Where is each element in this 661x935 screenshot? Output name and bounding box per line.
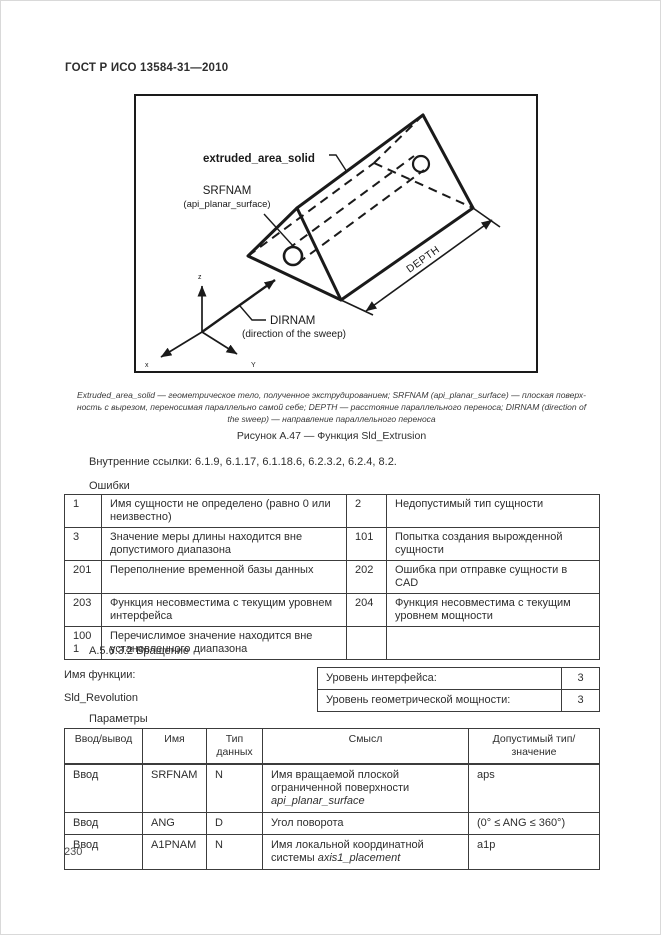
error-row: 3 Значение меры длины находится вне допу…: [65, 528, 600, 561]
function-name-label: Имя функции:: [64, 669, 135, 681]
error-desc: Функция несовместима с текущим уровнем м…: [387, 594, 600, 627]
axis-z-label: z: [198, 274, 202, 281]
params-header: Допустимый тип/значение: [469, 729, 600, 765]
legend-line: ность с вырезом, переносимая параллельно…: [64, 401, 599, 413]
param-io: Ввод: [65, 813, 143, 835]
error-desc: Имя сущности не определено (равно 0 или …: [102, 495, 347, 528]
error-desc: Значение меры длины находится вне допуст…: [102, 528, 347, 561]
level-label: Уровень интерфейса:: [318, 668, 562, 690]
param-row: Ввод SRFNAM N Имя вращаемой плоской огра…: [65, 764, 600, 813]
error-row: 201 Переполнение временной базы данных 2…: [65, 561, 600, 594]
srfnam-callout: [264, 214, 294, 247]
error-desc: [387, 627, 600, 660]
params-header: Смысл: [263, 729, 469, 765]
section-heading: А.5.6.3.2 Вращение: [89, 645, 189, 657]
param-meaning-text: Имя вращаемой плоской ограниченной повер…: [271, 769, 409, 794]
prism-solid-edges: [248, 115, 473, 300]
param-allowed: aps: [469, 764, 600, 813]
error-code: 101: [347, 528, 387, 561]
error-code: 1: [65, 495, 102, 528]
figure-a47-extrusion: DEPTH DIRNAM (direction of the sweep) z …: [134, 94, 538, 373]
extrusion-diagram: DEPTH DIRNAM (direction of the sweep) z …: [136, 96, 536, 371]
error-code: 3: [65, 528, 102, 561]
error-desc: Недопустимый тип сущности: [387, 495, 600, 528]
legend-line: the sweep) — направление параллельного п…: [64, 413, 599, 425]
param-type: D: [207, 813, 263, 835]
dirnam-callout: [240, 306, 266, 320]
params-header: Тип данных: [207, 729, 263, 765]
param-row: Ввод A1PNAM N Имя локальной координатной…: [65, 835, 600, 870]
param-allowed: (0° ≤ ANG ≤ 360°): [469, 813, 600, 835]
extruded-label: extruded_area_solid: [203, 153, 315, 165]
levels-table: Уровень интерфейса: 3 Уровень геометриче…: [317, 667, 600, 712]
error-code: [347, 627, 387, 660]
function-name-value: Sld_Revolution: [64, 692, 138, 704]
errors-table: 1 Имя сущности не определено (равно 0 ил…: [64, 494, 600, 660]
dirnam-arrow: [202, 280, 275, 332]
level-label: Уровень геометрической мощности:: [318, 690, 562, 712]
param-meaning: Угол поворота: [263, 813, 469, 835]
axis-x-label: x: [145, 362, 149, 369]
document-header: ГОСТ Р ИСО 13584-31—2010: [65, 62, 228, 74]
params-header: Имя: [143, 729, 207, 765]
internal-references: Внутренние ссылки: 6.1.9, 6.1.17, 6.1.18…: [89, 456, 397, 468]
param-allowed: a1p: [469, 835, 600, 870]
level-row: Уровень интерфейса: 3: [318, 668, 600, 690]
error-code: 202: [347, 561, 387, 594]
error-desc: Переполнение временной базы данных: [102, 561, 347, 594]
error-code: 204: [347, 594, 387, 627]
axis-y-label: Y: [251, 362, 256, 369]
param-row: Ввод ANG D Угол поворота (0° ≤ ANG ≤ 360…: [65, 813, 600, 835]
param-type: N: [207, 835, 263, 870]
level-value: 3: [562, 690, 600, 712]
extruded-callout: [329, 155, 347, 172]
params-header-row: Ввод/вывод Имя Тип данных Смысл Допустим…: [65, 729, 600, 765]
param-name: A1PNAM: [143, 835, 207, 870]
error-code: 203: [65, 594, 102, 627]
document-page: ГОСТ Р ИСО 13584-31—2010: [0, 0, 661, 935]
coordinate-axes: [161, 286, 237, 357]
param-name: SRFNAM: [143, 764, 207, 813]
back-hole: [413, 156, 429, 172]
error-desc: Ошибка при отправке сущности в CAD: [387, 561, 600, 594]
param-type: N: [207, 764, 263, 813]
parameters-table: Ввод/вывод Имя Тип данных Смысл Допустим…: [64, 728, 600, 870]
error-desc: Функция несовместима с текущим уровнем и…: [102, 594, 347, 627]
error-row: 1 Имя сущности не определено (равно 0 ил…: [65, 495, 600, 528]
param-meaning: Имя вращаемой плоской ограниченной повер…: [263, 764, 469, 813]
level-row: Уровень геометрической мощности: 3: [318, 690, 600, 712]
srfnam-label: SRFNAM: [203, 185, 252, 197]
parameters-title: Параметры: [89, 713, 148, 725]
param-meaning-italic: axis1_placement: [318, 852, 401, 864]
prism-hidden-edges: [248, 115, 473, 263]
front-hole: [284, 247, 302, 265]
figure-caption: Рисунок А.47 — Функция Sld_Extrusion: [64, 430, 599, 442]
legend-line: Extruded_area_solid — геометрическое тел…: [64, 389, 599, 401]
param-meaning-italic: api_planar_surface: [271, 795, 365, 807]
error-code: 2: [347, 495, 387, 528]
error-desc: Попытка создания вырожденной сущности: [387, 528, 600, 561]
dirnam-label: DIRNAM: [270, 315, 315, 327]
level-value: 3: [562, 668, 600, 690]
figure-legend: Extruded_area_solid — геометрическое тел…: [64, 389, 599, 425]
param-meaning: Имя локальной координатной системы axis1…: [263, 835, 469, 870]
param-name: ANG: [143, 813, 207, 835]
srfnam-sublabel: (api_planar_surface): [183, 199, 270, 210]
params-header: Ввод/вывод: [65, 729, 143, 765]
error-row: 203 Функция несовместима с текущим уровн…: [65, 594, 600, 627]
dirnam-sublabel: (direction of the sweep): [242, 329, 346, 340]
param-meaning-text: Угол поворота: [271, 817, 344, 829]
param-io: Ввод: [65, 764, 143, 813]
errors-title: Ошибки: [89, 480, 130, 492]
error-code: 201: [65, 561, 102, 594]
page-number: 230: [64, 846, 82, 858]
